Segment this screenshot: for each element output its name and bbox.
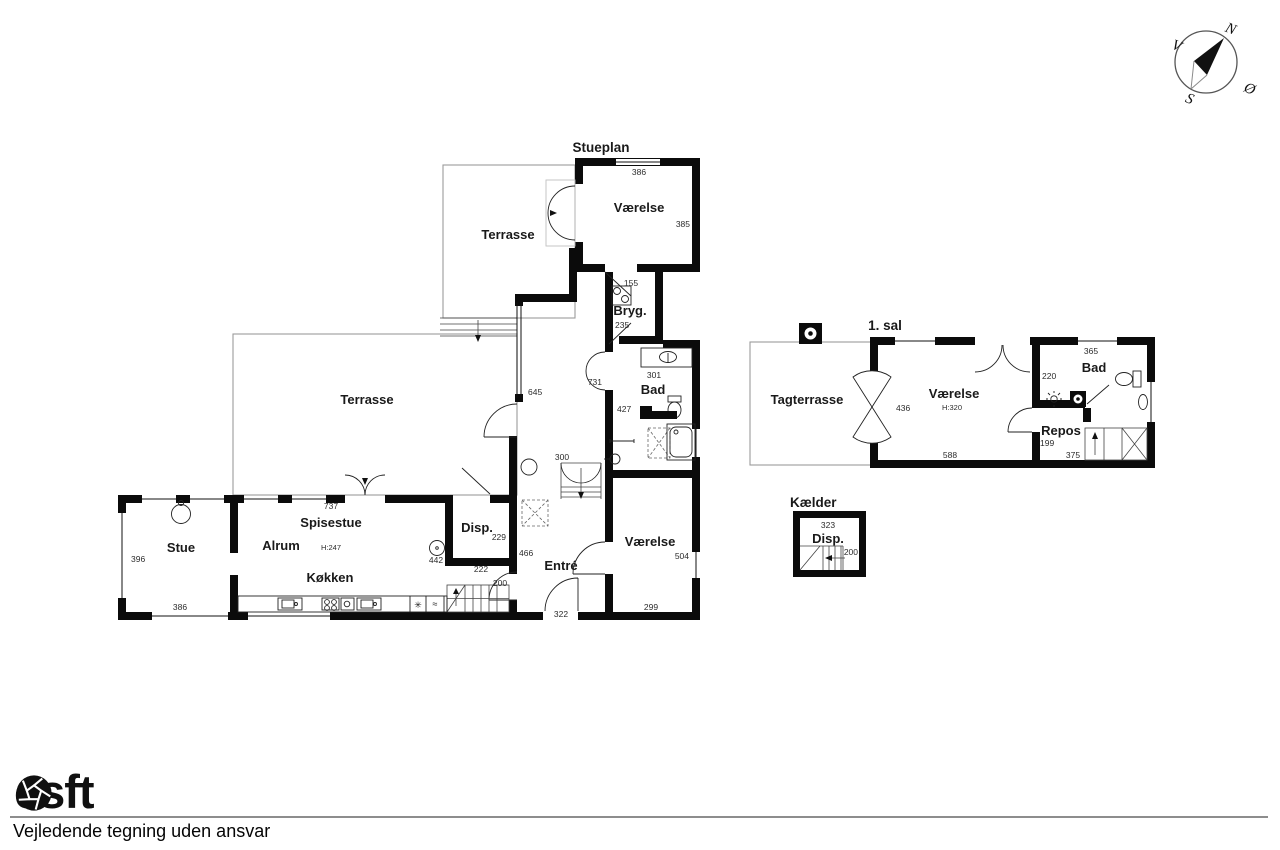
dim-200: 200 xyxy=(493,578,507,588)
dim-229: 229 xyxy=(492,532,506,542)
shower-wall xyxy=(640,406,652,419)
footer-divider xyxy=(10,816,1268,818)
dim-385: 385 xyxy=(676,219,690,229)
dim-386-top: 386 xyxy=(632,167,646,177)
dim-731: 731 xyxy=(588,377,602,387)
spisestue-label: Spisestue xyxy=(300,515,361,530)
kaelder-disp-label: Disp. xyxy=(812,531,844,546)
stueplan-title: Stueplan xyxy=(572,140,629,155)
kaelder-title: Kælder xyxy=(790,495,837,510)
tagterrasse-label: Tagterrasse xyxy=(771,392,844,407)
compass-north-label: N xyxy=(1222,20,1239,39)
first-floor-plan: 1. sal Tagterrasse Værelse H:320 436 588… xyxy=(750,318,1155,468)
koekken-label: Køkken xyxy=(307,570,354,585)
chimney-icon xyxy=(799,323,822,344)
floor-plan-page: N V S Ø xyxy=(0,0,1280,850)
dim-737: 737 xyxy=(324,501,338,511)
floor-plan-drawing: N V S Ø xyxy=(0,0,1280,850)
toilet-icon-1sal xyxy=(1116,371,1142,387)
dishwasher-icon: ≈ xyxy=(433,599,438,609)
stueplan-labels: Stueplan Terrasse Terrasse Værelse 386 3… xyxy=(131,140,690,619)
dim-588: 588 xyxy=(943,450,957,460)
entre-label: Entré xyxy=(544,558,577,573)
dim-301: 301 xyxy=(647,370,661,380)
stueplan-walls xyxy=(118,158,700,620)
dim-222: 222 xyxy=(474,564,488,574)
dim-504: 504 xyxy=(675,551,689,561)
dim-427: 427 xyxy=(617,404,631,414)
stueplan-plan: ✳ ≈ xyxy=(118,140,700,620)
dim-299: 299 xyxy=(644,602,658,612)
alrum-label: Alrum xyxy=(262,538,300,553)
bathtub-icon xyxy=(667,424,695,460)
dim-155: 155 xyxy=(624,278,638,288)
esoft-logo: es ft xyxy=(14,768,94,815)
first-floor-fixtures xyxy=(1046,371,1148,460)
dim-442: 442 xyxy=(429,555,443,565)
dim-386-bottom: 386 xyxy=(173,602,187,612)
compass-rose: N V S Ø xyxy=(1169,20,1258,109)
dim-199: 199 xyxy=(1040,438,1054,448)
round-sink-icon xyxy=(430,541,445,556)
footer-disclaimer: Vejledende tegning uden ansvar xyxy=(13,821,270,842)
stue-label: Stue xyxy=(167,540,195,555)
first-floor-walls xyxy=(870,337,1155,468)
first-floor-title: 1. sal xyxy=(868,318,902,333)
freezer-icon: ✳ xyxy=(414,600,422,610)
dim-235: 235 xyxy=(615,320,629,330)
toilet-nook-wall xyxy=(652,411,677,419)
repos-label: Repos xyxy=(1041,423,1081,438)
esoft-logo-suffix: ft xyxy=(64,768,93,815)
vaerelse-1sal-label: Værelse xyxy=(929,386,980,401)
dim-365: 365 xyxy=(1084,346,1098,356)
vaerelse-top-label: Værelse xyxy=(614,200,665,215)
compass-east-label: Ø xyxy=(1241,79,1259,99)
dim-375: 375 xyxy=(1066,450,1080,460)
dim-466: 466 xyxy=(519,548,533,558)
dim-300: 300 xyxy=(555,452,569,462)
compass-south-label: S xyxy=(1183,90,1196,108)
dim-220: 220 xyxy=(1042,371,1056,381)
terrasse-top-label: Terrasse xyxy=(481,227,534,242)
vaerelse-bottom-label: Værelse xyxy=(625,534,676,549)
dim-322: 322 xyxy=(554,609,568,619)
compass-needle xyxy=(1194,38,1224,75)
terrasse-main-label: Terrasse xyxy=(340,392,393,407)
dim-323: 323 xyxy=(821,520,835,530)
bryg-label: Bryg. xyxy=(613,303,646,318)
esoft-o-icon xyxy=(15,774,53,812)
kaelder-plan: Kælder 323 Disp. 200 xyxy=(790,495,866,577)
bad-label: Bad xyxy=(641,382,666,397)
compass-west-label: V xyxy=(1169,37,1185,56)
dim-436: 436 xyxy=(896,403,910,413)
stueplan-terraces xyxy=(233,165,575,495)
dim-396: 396 xyxy=(131,554,145,564)
disp-label: Disp. xyxy=(461,520,493,535)
ceiling-height-h247: H:247 xyxy=(321,543,341,552)
floor-drain-icon xyxy=(521,459,537,475)
dim-645: 645 xyxy=(528,387,542,397)
dim-200-kaelder: 200 xyxy=(844,547,858,557)
flue-icon xyxy=(1070,391,1086,407)
hatch-dashed xyxy=(522,500,548,526)
sink-icon-1sal xyxy=(1139,395,1148,410)
wood-stove-icon xyxy=(172,501,191,524)
bad-1sal-label: Bad xyxy=(1082,360,1107,375)
ceiling-height-h320: H:320 xyxy=(942,403,962,412)
stueplan-windows xyxy=(118,159,700,619)
first-floor-stair xyxy=(1085,428,1147,460)
bad-sink-counter xyxy=(641,348,692,367)
